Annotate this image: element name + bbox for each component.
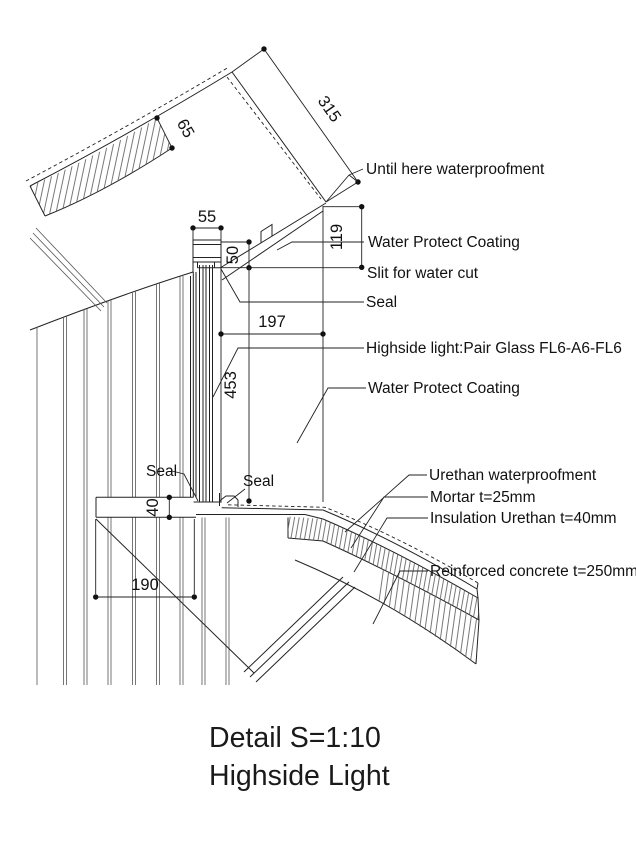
dimension-197: 197 [218, 313, 325, 337]
label-slit-for-water-cut: Slit for water cut [367, 265, 479, 282]
dimension-55: 55 [190, 208, 223, 240]
label-urethan-waterproofment: Urethan waterproofment [429, 467, 597, 484]
drawing-title-name: Highside Light [209, 760, 390, 792]
drawing-canvas: 65 315 55 50 119 197 453 40 190 [0, 0, 636, 850]
drawing-title-scale: Detail S=1:10 [209, 722, 381, 754]
dimension-40: 40 [144, 495, 172, 520]
roof-slab-layers [228, 505, 479, 664]
label-insulation-urethan: Insulation Urethan t=40mm [430, 510, 617, 527]
title-block: Detail S=1:10 Highside Light [209, 722, 390, 792]
fascia-elevation-lines [96, 519, 355, 682]
label-seal-left: Seal [146, 463, 177, 480]
dimension-119: 119 [323, 204, 364, 270]
label-water-protect-coating-mid: Water Protect Coating [368, 380, 520, 397]
sloped-roof-edge [227, 72, 326, 202]
detail-drawing-svg: 65 315 55 50 119 197 453 40 190 [0, 0, 636, 850]
dimension-50: 50 [221, 239, 252, 270]
label-reinforced-concrete: Reinforced concrete t=250mm [430, 563, 636, 580]
dim-head-height: 50 [224, 246, 242, 264]
window-head-frame [193, 240, 221, 272]
dim-glass-height: 453 [222, 371, 240, 399]
label-water-protect-coating-top: Water Protect Coating [368, 234, 520, 251]
label-highside-light-glass: Highside light:Pair Glass FL6-A6-FL6 [366, 340, 622, 357]
label-seal-right: Seal [243, 473, 274, 490]
dim-sill-ledge-thickness: 40 [144, 498, 162, 516]
label-until-here-waterproofment: Until here waterproofment [366, 161, 545, 178]
dimension-453: 453 [222, 268, 252, 504]
dimension-315: 315 [232, 46, 361, 202]
curved-roof-slab-section [26, 67, 232, 216]
dim-ledge-width: 190 [131, 576, 159, 594]
dim-head-to-edge-offset: 197 [258, 313, 286, 331]
slit-drip-tab [261, 225, 272, 243]
overhang-soffit [220, 203, 326, 280]
label-seal-head: Seal [366, 294, 397, 311]
dim-roof-slab-thickness: 65 [173, 116, 198, 141]
dim-roof-edge-length: 315 [314, 93, 345, 126]
glass-unit [191, 265, 213, 502]
label-mortar: Mortar t=25mm [430, 489, 536, 506]
dim-head-width: 55 [198, 208, 216, 226]
dim-edge-drop: 119 [328, 224, 346, 250]
roof-slab-hatch [30, 118, 172, 216]
